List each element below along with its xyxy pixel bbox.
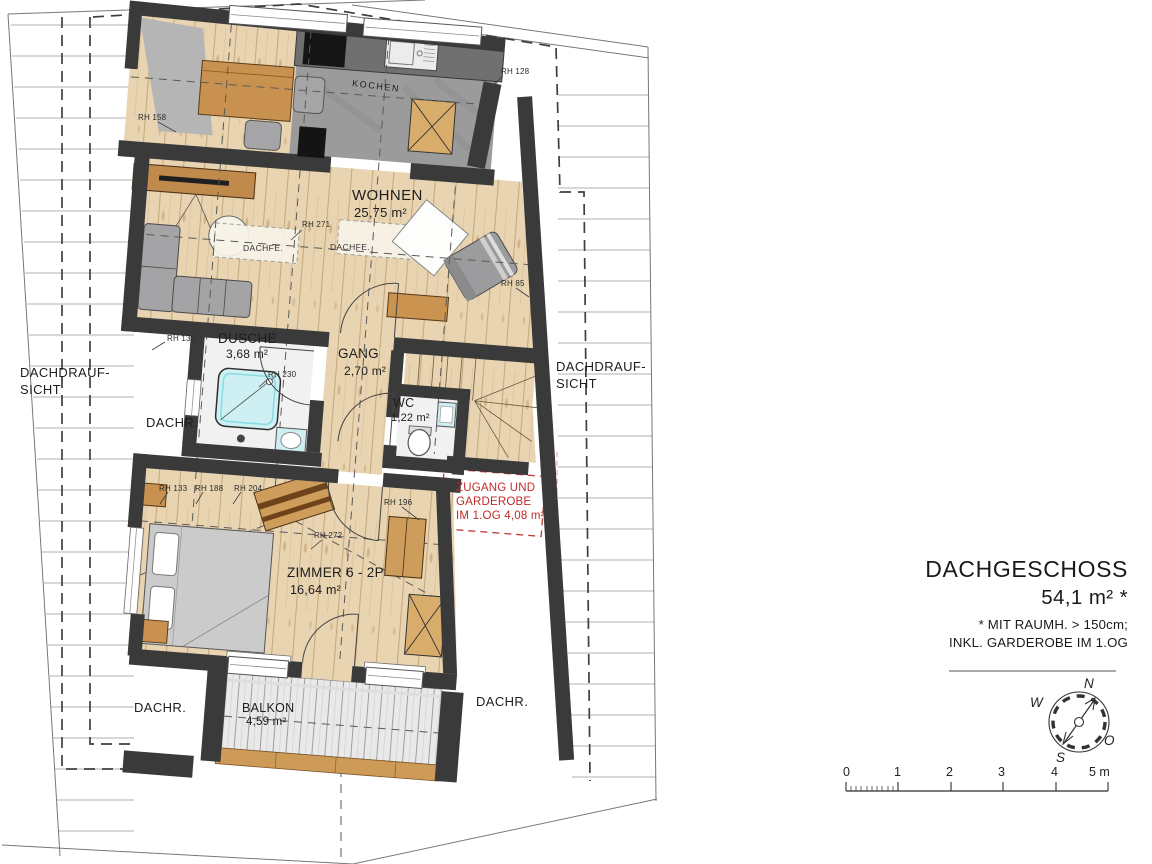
- zimmer-label: ZIMMER 6 - 2P: [287, 566, 384, 580]
- wardrobe: [385, 516, 427, 578]
- gang-label: GANG: [338, 347, 379, 361]
- rh230-label: RH 230: [268, 371, 296, 379]
- dachr-label-1: DACHR.: [146, 416, 198, 429]
- roof-view-label-right-2: SICHT: [556, 377, 597, 390]
- zugang-note-line3: IM 1.OG 4,08 m²: [456, 511, 545, 523]
- title-block: DACHGESCHOSS 54,1 m² * * MIT RAUMH. > 15…: [820, 556, 1128, 650]
- wohnen-area: 25,75 m²: [354, 206, 407, 219]
- dusche-area: 3,68 m²: [226, 348, 268, 360]
- compass-west-label: W: [1030, 696, 1043, 710]
- wc-label: WC: [393, 397, 414, 410]
- rh272-label: RH 272: [314, 532, 342, 540]
- dachfe-label-1: DACHFE.: [243, 244, 283, 253]
- compass-north-label: N: [1084, 677, 1094, 691]
- rh158-label: RH 158: [138, 114, 166, 122]
- zimmer-area: 16,64 m²: [290, 584, 341, 597]
- dachr-label-3: DACHR.: [476, 695, 528, 708]
- rh204-label: RH 204: [234, 485, 262, 493]
- rh133-label: RH 133: [159, 485, 187, 493]
- gang-area: 2,70 m²: [344, 365, 386, 377]
- wohnen-label: WOHNEN: [352, 188, 423, 203]
- rh188-label: RH 188: [195, 485, 223, 493]
- dachfe-label-2: DACHFE.: [330, 243, 370, 252]
- floorplan-sheet: KOCHEN WOHNEN 25,75 m² DUSCHE 3,68 m² GA…: [0, 0, 1152, 864]
- rh128-label: RH 128: [501, 68, 529, 76]
- dusche-label: DUSCHE: [218, 332, 277, 346]
- scale-tick-1: 1: [894, 766, 901, 779]
- sheet-note-2: INKL. GARDEROBE IM 1.OG: [820, 635, 1128, 650]
- zugang-note-line1: ZUGANG UND: [456, 483, 535, 495]
- dachr-label-2: DACHR.: [134, 701, 186, 714]
- compass-south-label: S: [1056, 751, 1065, 765]
- compass-east-label: O: [1104, 734, 1115, 748]
- roof-view-label-left-1: DACHDRAUF-: [20, 366, 110, 379]
- wc-area: 1,22 m²: [391, 413, 430, 424]
- zugang-note-line2: GARDEROBE: [456, 497, 531, 509]
- scale-tick-5: 5 m: [1089, 766, 1110, 779]
- rh130-label: RH 130: [167, 335, 195, 343]
- scale-tick-4: 4: [1051, 766, 1058, 779]
- sheet-title: DACHGESCHOSS: [820, 556, 1128, 583]
- balkon-area: 4,59 m²: [246, 717, 286, 729]
- sheet-note-1: * MIT RAUMH. > 150cm;: [820, 617, 1128, 632]
- wc-sink: [436, 402, 456, 427]
- drawing-canvas: [0, 0, 1152, 864]
- roof-view-label-left-2: SICHT: [20, 383, 61, 396]
- storage-box: [404, 594, 446, 657]
- kitchen-cabinet: [408, 99, 456, 154]
- sheet-total-area: 54,1 m² *: [820, 586, 1128, 610]
- roof-view-label-right-1: DACHDRAUF-: [556, 360, 646, 373]
- scale-tick-3: 3: [998, 766, 1005, 779]
- scale-tick-0: 0: [843, 766, 850, 779]
- rh85-label: RH 85: [501, 280, 525, 288]
- compass-rose: [1049, 692, 1109, 752]
- rh196-label: RH 196: [384, 499, 412, 507]
- rh271-label: RH 271: [302, 221, 330, 229]
- scale-bar: [846, 782, 1108, 791]
- balkon-label: BALKON: [242, 702, 295, 715]
- scale-tick-2: 2: [946, 766, 953, 779]
